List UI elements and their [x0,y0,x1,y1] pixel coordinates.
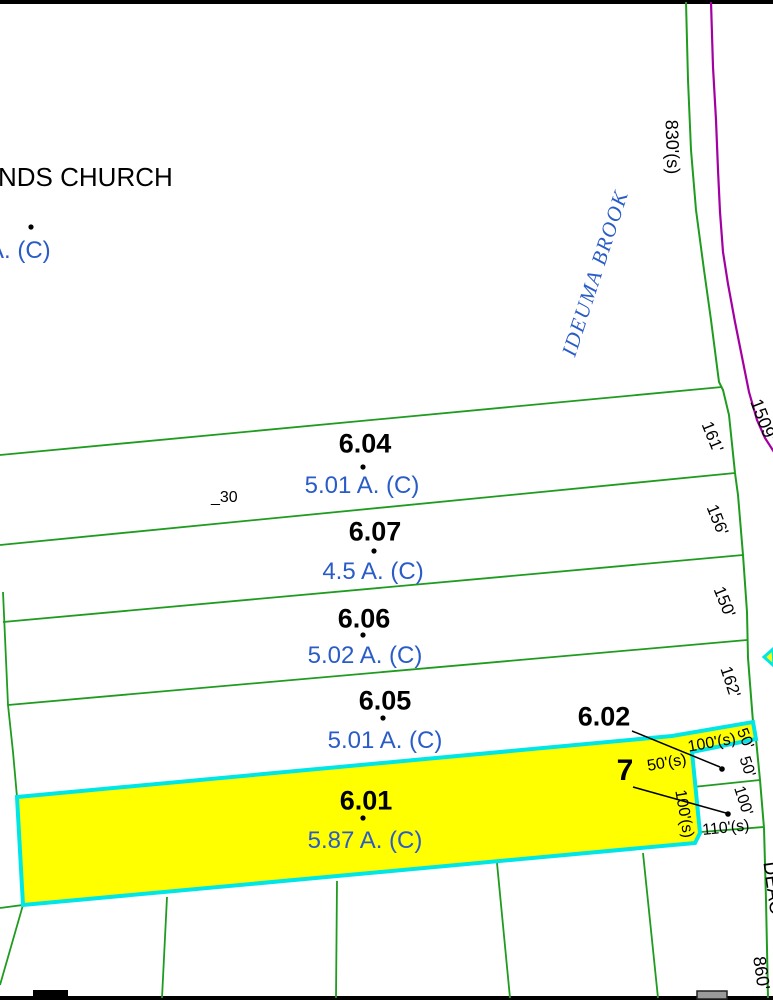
church-owner-label: NDS CHURCH [0,164,173,191]
parcel-label-7: 7 [617,754,634,788]
parcel-acreage-6-04: 5.01 A. (C) [305,472,420,500]
east-boundary-line [686,2,768,998]
parcel-map: NDS CHURCH A. (C) IDEUMA BROOK _30 6.04 … [0,0,773,1000]
parcel-label-6-06: 6.06 [338,604,391,635]
parcel-number: 6.07 [349,517,402,548]
parcel-acreage: 5.87 A. (C) [308,827,423,855]
west-boundary-line [3,592,17,797]
centroid-dot-607 [371,548,376,553]
parcel-number: 6.04 [339,429,392,460]
bottom-lot-divider [643,853,658,998]
parcel-label-6-01: 6.01 [340,786,393,817]
centroid-dot-church [28,224,33,229]
parcel-label-6-07: 6.07 [349,517,402,548]
parcel-number: 6.02 [578,702,631,733]
parcel-label-6-05: 6.05 [359,686,412,717]
small-lot-a-south-line [693,780,760,787]
centroid-dot-604 [360,464,365,469]
parcel-acreage: 5.01 A. (C) [305,472,420,500]
building-footprint [33,990,68,998]
parcel-acreage-6-07: 4.5 A. (C) [322,558,423,586]
dimension-830s: 830'(s) [662,119,683,174]
parcel-acreage: 4.5 A. (C) [322,558,423,586]
annotation-30: _30 [211,490,238,507]
parcel-number: 6.06 [338,604,391,635]
building-footprint [697,991,727,999]
bottom-lot-divider [162,897,167,998]
parcel-number: 7 [617,754,634,788]
parcel-number: 6.01 [340,786,393,817]
leader-dot-7 [725,811,731,817]
parcel-label-6-02: 6.02 [578,702,631,733]
neatline-top [0,0,773,4]
parcel-acreage-6-06: 5.02 A. (C) [308,642,423,670]
west-boundary-lower-line [0,905,23,985]
parcel-label-6-04: 6.04 [339,429,392,460]
parcel-acreage-6-01: 5.87 A. (C) [308,827,423,855]
highlight-fragment [764,649,773,666]
parcel-acreage-6-05: 5.01 A. (C) [328,727,443,755]
leader-dot-6-02 [719,766,725,772]
parcel-acreage: 5.01 A. (C) [328,727,443,755]
parcel-number: 6.05 [359,686,412,717]
church-acreage-label: A. (C) [0,238,51,263]
bottom-lot-divider [497,863,510,998]
parcel-acreage: 5.02 A. (C) [308,642,423,670]
dimension-860: 860' [749,955,772,991]
bottom-lot-divider [336,881,337,998]
